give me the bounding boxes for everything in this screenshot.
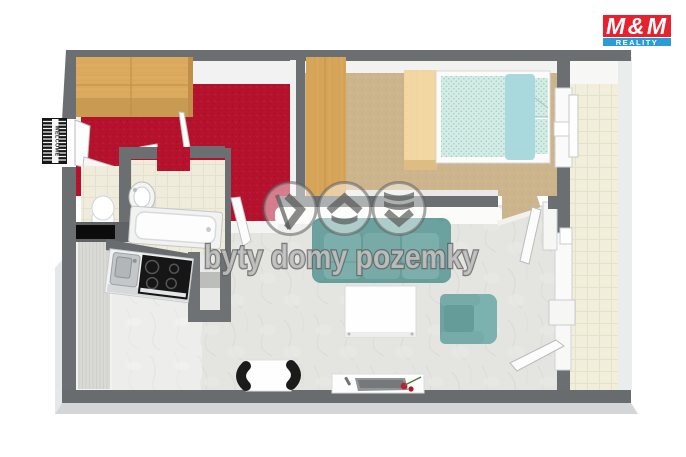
svg-text:byty domy pozemky: byty domy pozemky (204, 238, 479, 275)
svg-text:WELCOME: WELCOME (54, 126, 60, 157)
svg-text:REALITY: REALITY (616, 38, 659, 47)
svg-text:M&M: M&M (606, 13, 667, 39)
